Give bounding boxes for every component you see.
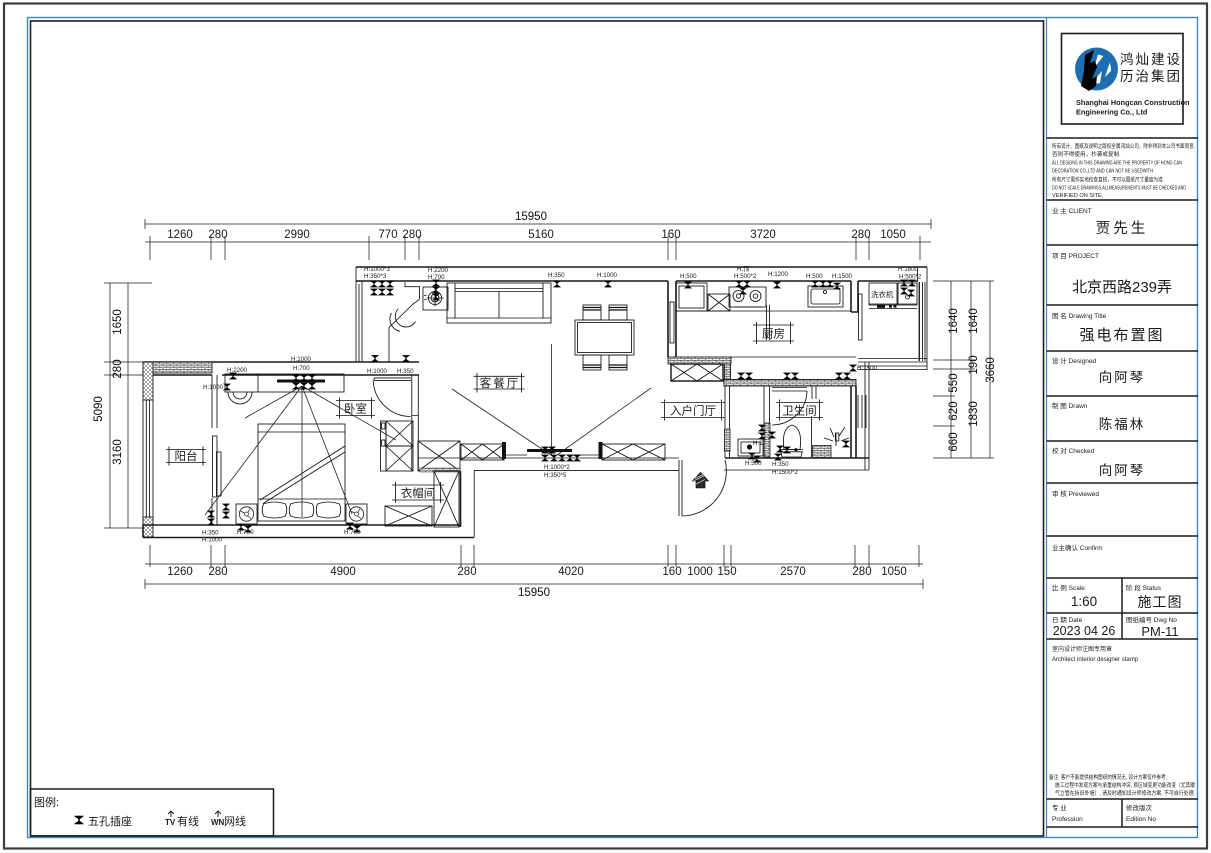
- svg-text:2990: 2990: [284, 229, 310, 241]
- svg-text:H:1000*3: H:1000*3: [364, 266, 390, 273]
- svg-text:审 核 Previewed: 审 核 Previewed: [1052, 489, 1099, 498]
- svg-text:衣帽间: 衣帽间: [401, 486, 436, 500]
- svg-text:图纸编号 Dwg No: 图纸编号 Dwg No: [1126, 615, 1177, 624]
- svg-text:3160: 3160: [112, 439, 124, 465]
- svg-text:历治集团: 历治集团: [1120, 69, 1182, 84]
- svg-text:向阿琴: 向阿琴: [1099, 370, 1146, 385]
- svg-text:H:350*5: H:350*5: [544, 472, 567, 479]
- svg-text:Engineering Co., Ltd: Engineering Co., Ltd: [1076, 108, 1147, 117]
- svg-text:280: 280: [457, 566, 476, 578]
- svg-text:否则不得使用，抄袭或复制.: 否则不得使用，抄袭或复制.: [1052, 150, 1121, 158]
- svg-text:厨房: 厨房: [762, 328, 785, 341]
- svg-text:1640: 1640: [948, 308, 960, 334]
- svg-text:DO NOT SCALE DRAWINGS.ALLMEASU: DO NOT SCALE DRAWINGS.ALLMEASUREMENTS MU…: [1052, 186, 1186, 192]
- svg-text:4900: 4900: [330, 566, 356, 578]
- svg-text:5090: 5090: [93, 396, 105, 422]
- svg-text:H:500: H:500: [680, 273, 697, 280]
- svg-text:660: 660: [948, 432, 960, 451]
- svg-text:H:1500: H:1500: [857, 365, 878, 372]
- svg-text:卧室: 卧室: [344, 402, 367, 416]
- svg-text:H:350: H:350: [548, 272, 565, 279]
- svg-text:H:350: H:350: [397, 368, 414, 375]
- svg-text:H:700: H:700: [344, 529, 361, 536]
- svg-text:2570: 2570: [780, 566, 806, 578]
- svg-text:15950: 15950: [518, 587, 550, 599]
- svg-text:H:350*3: H:350*3: [364, 273, 387, 280]
- svg-text:入户门厅: 入户门厅: [670, 404, 716, 418]
- svg-text:备注: 客户不能提供结构图纸的情况无, 设计方案仅作参考.: 备注: 客户不能提供结构图纸的情况无, 设计方案仅作参考.: [1049, 773, 1167, 781]
- svg-text:阶 段 Status: 阶 段 Status: [1126, 583, 1162, 592]
- svg-text:业 主 CLIENT: 业 主 CLIENT: [1052, 206, 1092, 215]
- svg-text:160: 160: [662, 566, 681, 578]
- svg-text:Architect interior designer st: Architect interior designer stamp: [1052, 657, 1139, 663]
- svg-text:强电布置图: 强电布置图: [1079, 327, 1164, 344]
- svg-text:WN: WN: [211, 818, 225, 827]
- svg-text:Profession: Profession: [1052, 816, 1083, 823]
- svg-text:1000: 1000: [687, 566, 713, 578]
- svg-text:H:1000*2: H:1000*2: [544, 464, 570, 471]
- svg-text:H:1000: H:1000: [203, 384, 224, 391]
- svg-text:陈福林: 陈福林: [1099, 416, 1146, 432]
- svg-text:TV: TV: [165, 818, 176, 827]
- svg-text:550: 550: [948, 373, 960, 392]
- svg-text:H:700: H:700: [428, 274, 445, 281]
- svg-text:Shanghai Hongcan Construction: Shanghai Hongcan Construction: [1076, 98, 1190, 107]
- svg-text:H:1000: H:1000: [367, 368, 388, 375]
- svg-text:4020: 4020: [558, 566, 584, 578]
- svg-text:150: 150: [717, 566, 736, 578]
- svg-text:280: 280: [402, 229, 421, 241]
- svg-text:H:1500*2: H:1500*2: [772, 469, 798, 476]
- svg-text:向阿琴: 向阿琴: [1099, 463, 1146, 478]
- svg-text:H:1: H:1: [753, 440, 763, 447]
- svg-text:1830: 1830: [968, 401, 980, 427]
- svg-text:图例:: 图例:: [34, 795, 59, 809]
- svg-text:有线: 有线: [177, 814, 199, 828]
- svg-text:业主确认 Confirm: 业主确认 Confirm: [1052, 543, 1103, 552]
- svg-text:H:500*2: H:500*2: [899, 274, 922, 281]
- svg-text:280: 280: [208, 566, 227, 578]
- svg-text:H:1000: H:1000: [597, 272, 618, 279]
- svg-text:气立管在拆旧外墙）, 请及时通知设计师修改方案, 不可自行处: 气立管在拆旧外墙）, 请及时通知设计师修改方案, 不可自行处理.: [1055, 789, 1195, 797]
- svg-text:15950: 15950: [515, 211, 547, 223]
- svg-text:专 业: 专 业: [1052, 803, 1067, 812]
- svg-text:卫生间: 卫生间: [782, 404, 817, 418]
- svg-text:客餐厅: 客餐厅: [480, 376, 521, 390]
- svg-text:H:1000: H:1000: [202, 537, 223, 544]
- svg-text:H:1800: H:1800: [898, 266, 919, 273]
- svg-text:室内设计师注图专用章: 室内设计师注图专用章: [1052, 645, 1112, 653]
- svg-text:H:2200: H:2200: [428, 267, 449, 274]
- svg-text:VERIFIED ON SITE.: VERIFIED ON SITE.: [1052, 193, 1104, 199]
- svg-text:图 名 Drawing Title: 图 名 Drawing Title: [1052, 311, 1107, 320]
- svg-text:2023 04 26: 2023 04 26: [1053, 624, 1116, 638]
- svg-text:贾先生: 贾先生: [1096, 220, 1149, 237]
- svg-text:280: 280: [852, 566, 871, 578]
- svg-text:1050: 1050: [880, 229, 906, 241]
- svg-text:H:350: H:350: [772, 461, 789, 468]
- svg-text:3660: 3660: [985, 357, 997, 383]
- svg-text:北京西路239弄: 北京西路239弄: [1072, 279, 1172, 296]
- svg-text:Edition No: Edition No: [1126, 816, 1156, 823]
- svg-text:280: 280: [208, 229, 227, 241]
- svg-text:H:1200: H:1200: [768, 271, 789, 278]
- svg-text:1640: 1640: [968, 308, 980, 334]
- svg-text:H:1000: H:1000: [291, 356, 312, 363]
- svg-text:制 图 Drawn: 制 图 Drawn: [1052, 401, 1088, 410]
- svg-text:洗衣机: 洗衣机: [871, 289, 894, 299]
- svg-text:H:350: H:350: [202, 530, 219, 537]
- svg-text:修改版次: 修改版次: [1126, 803, 1153, 812]
- svg-text:阳台: 阳台: [175, 449, 198, 463]
- svg-text:鸿灿建设: 鸿灿建设: [1120, 51, 1182, 67]
- svg-text:设 计 Designed: 设 计 Designed: [1052, 356, 1096, 365]
- svg-text:1260: 1260: [167, 566, 193, 578]
- svg-text:校 对 Checked: 校 对 Checked: [1052, 446, 1095, 455]
- svg-text:H:500*2: H:500*2: [734, 273, 757, 280]
- svg-text:所有设计、图纸及说明之版权全属鸿灿公司，除非得到本公司书面同: 所有设计、图纸及说明之版权全属鸿灿公司，除非得到本公司书面同意,: [1052, 142, 1195, 150]
- svg-text:190: 190: [968, 355, 980, 374]
- svg-text:H:500: H:500: [806, 273, 823, 280]
- svg-text:H:700: H:700: [293, 365, 310, 372]
- svg-text:施工图: 施工图: [1138, 594, 1183, 610]
- svg-text:H:1500: H:1500: [832, 273, 853, 280]
- svg-text:3720: 3720: [750, 229, 776, 241]
- svg-text:1:60: 1:60: [1071, 594, 1097, 609]
- svg-text:DECORATION CO.,LTD AND CAN NOT: DECORATION CO.,LTD AND CAN NOT BE USEDWI…: [1052, 169, 1153, 175]
- svg-text:280: 280: [112, 359, 124, 378]
- svg-text:160: 160: [661, 229, 680, 241]
- svg-text:五孔插座: 五孔插座: [88, 814, 132, 828]
- svg-text:H:2200: H:2200: [227, 367, 248, 374]
- svg-text:ALL DESIGNS IN THIS DRAWING AR: ALL DESIGNS IN THIS DRAWING ARE THE PROP…: [1052, 161, 1182, 167]
- svg-text:1650: 1650: [112, 309, 124, 335]
- svg-text:H:顶: H:顶: [737, 266, 749, 273]
- svg-text:施工过程中发现方案与承重结构冲突, 原区域变更功能改变（尤其: 施工过程中发现方案与承重结构冲突, 原区域变更功能改变（尤其暖: [1055, 781, 1195, 789]
- svg-text:H:500: H:500: [745, 460, 762, 467]
- svg-text:H:700: H:700: [237, 529, 254, 536]
- svg-text:所有尺寸需作实地检查复核，不可以图纸尺寸量度为准.: 所有尺寸需作实地检查复核，不可以图纸尺寸量度为准.: [1052, 176, 1164, 184]
- svg-text:网线: 网线: [224, 814, 246, 828]
- svg-text:1050: 1050: [881, 566, 907, 578]
- svg-text:PM-11: PM-11: [1141, 624, 1178, 639]
- svg-text:280: 280: [851, 229, 870, 241]
- svg-text:日 期 Date: 日 期 Date: [1052, 616, 1083, 624]
- svg-text:比 例 Scale: 比 例 Scale: [1052, 583, 1085, 592]
- svg-text:770: 770: [378, 229, 397, 241]
- svg-text:620: 620: [948, 401, 960, 420]
- svg-text:1260: 1260: [167, 229, 193, 241]
- svg-text:项 目 PROJECT: 项 目 PROJECT: [1052, 252, 1099, 260]
- svg-text:5160: 5160: [528, 229, 554, 241]
